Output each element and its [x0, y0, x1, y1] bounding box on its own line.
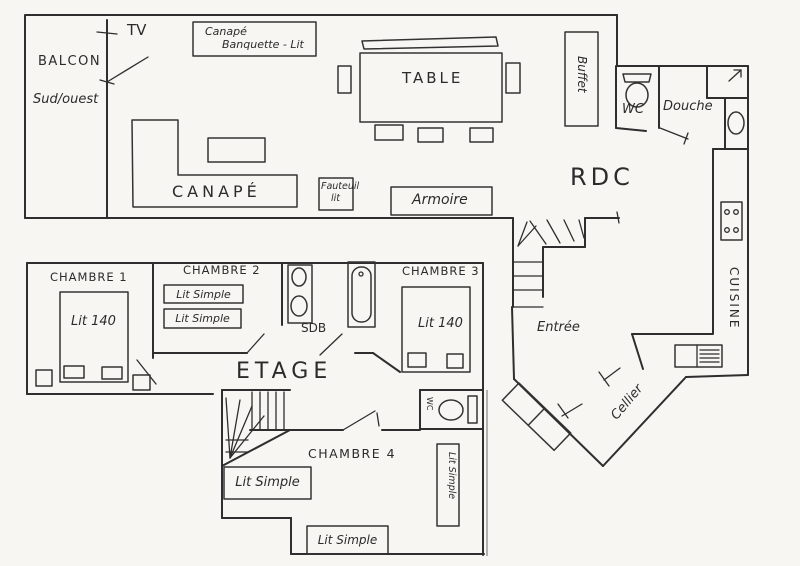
- floor-plan-scan: BALCON Sud/ouest TV Canapé Banquette - L…: [0, 0, 800, 566]
- etage-wc-label: WC: [425, 397, 433, 411]
- bench-icon: [362, 37, 498, 49]
- kitchen-walls: [632, 149, 713, 369]
- buffet-label: Buffet: [576, 56, 588, 93]
- sink-icon: [291, 296, 307, 316]
- bedroom3-label: CHAMBRE 3: [402, 266, 480, 278]
- dining-table: [360, 53, 502, 122]
- entrance-door-icon: [502, 383, 570, 450]
- bedroom1-furniture: [36, 292, 150, 390]
- bedroom1-bed-label: Lit 140: [71, 315, 116, 328]
- bedroom2-label: CHAMBRE 2: [183, 265, 261, 277]
- bed-140-1: [60, 292, 128, 382]
- pillow: [447, 354, 463, 368]
- entrance-label: Entrée: [537, 321, 580, 334]
- etage-floor-label: ETAGE: [236, 361, 332, 383]
- kitchen-sink-icon: [675, 345, 722, 367]
- rdc-floor-label: RDC: [570, 165, 634, 189]
- nightstand: [36, 370, 52, 386]
- bedroom4-bed-right-label: Lit Simple: [447, 452, 457, 499]
- pillow: [408, 353, 426, 367]
- washbasin-icon: [728, 112, 744, 134]
- balcony-label: BALCON: [38, 55, 101, 68]
- rdc-closet-walls: [707, 66, 748, 98]
- bedroom4-label: CHAMBRE 4: [308, 448, 396, 461]
- pillow: [102, 367, 122, 379]
- sofa-bed-label-line1: Canapé: [205, 26, 247, 37]
- vanity: [288, 265, 312, 323]
- etage-outer-walls: [27, 263, 487, 556]
- bedroom4-bed-left-label: Lit Simple: [224, 476, 311, 489]
- bedroom2-bed2-label: Lit Simple: [164, 313, 241, 324]
- kitchen-label: CUISINE: [728, 267, 740, 329]
- coffee-table: [208, 138, 265, 162]
- bedroom4-bed-bottom-label: Lit Simple: [307, 534, 388, 546]
- table-label: TABLE: [402, 71, 463, 86]
- toilet-tank-icon: [468, 396, 477, 423]
- armchair-label-line2: lit: [331, 194, 340, 204]
- wardrobe-label: Armoire: [412, 193, 468, 207]
- bathroom-label: SDB: [301, 322, 326, 334]
- bathtub-inner: [352, 267, 371, 322]
- bedroom1-label: CHAMBRE 1: [50, 272, 128, 284]
- balcony-orientation-label: Sud/ouest: [33, 93, 98, 106]
- bathroom-fixtures: [288, 262, 375, 327]
- bedroom2-bed1-label: Lit Simple: [164, 289, 243, 300]
- north-arrow-icon: [729, 70, 741, 81]
- toilet-bowl-icon: [439, 400, 463, 420]
- pillow: [64, 366, 84, 378]
- sink-icon: [292, 268, 306, 286]
- rdc-wc-label: WC: [622, 103, 644, 116]
- nightstand: [133, 375, 150, 390]
- sofa-label: CANAPÉ: [172, 184, 261, 200]
- balcony-wall: [97, 20, 117, 218]
- tv-label: TV: [127, 23, 146, 38]
- rdc-staircase: [513, 218, 585, 307]
- stove-icon: [721, 202, 742, 240]
- sofa-bed-label-line2: Banquette - Lit: [222, 39, 304, 50]
- bathtub-drain: [359, 272, 363, 276]
- bedroom3-bed-label: Lit 140: [418, 317, 463, 330]
- armchair-label-line1: Fauteuil: [321, 182, 359, 192]
- rdc-washbasin-nook: [713, 98, 748, 149]
- shower-label: Douche: [663, 100, 713, 113]
- tv-pointer-line: [107, 57, 148, 82]
